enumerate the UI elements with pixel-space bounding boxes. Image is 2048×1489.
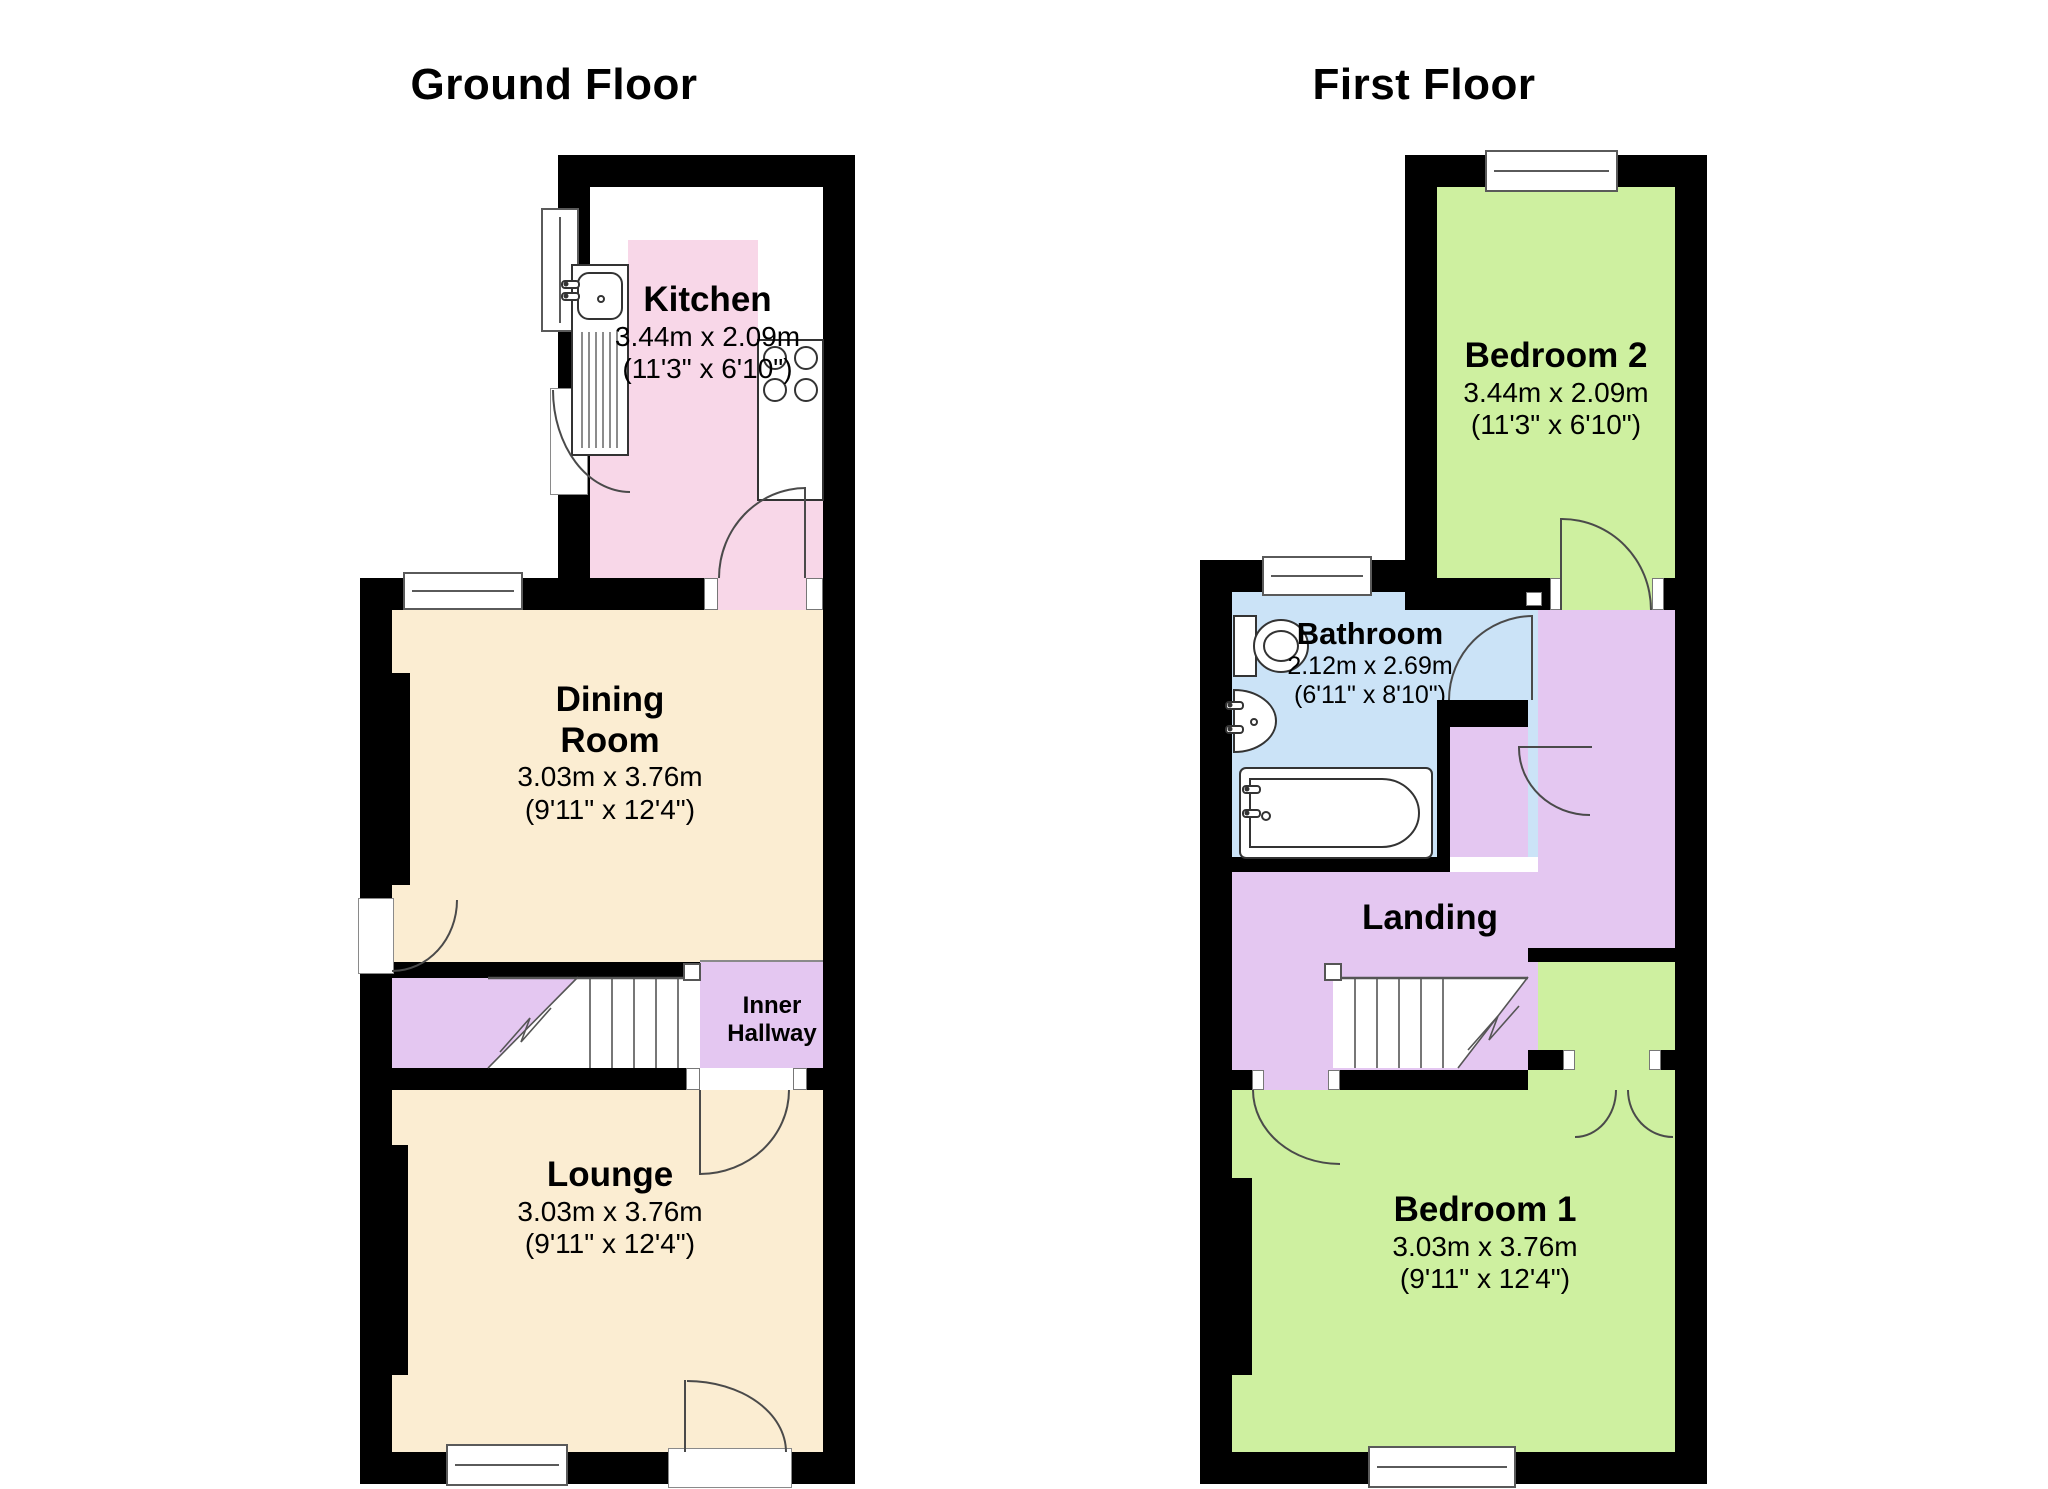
room-name: Landing: [1330, 898, 1530, 939]
door-leaf: [1531, 615, 1533, 700]
room-dims-imperial: (9'11" x 12'4"): [1330, 1263, 1640, 1295]
overstairs-cupboard-floor: [1538, 962, 1675, 1050]
bedroom1-window: [1368, 1446, 1516, 1488]
wall: [392, 1068, 686, 1090]
fixtures-layer: [0, 0, 2048, 1489]
wall: [392, 962, 700, 978]
door-leaf: [1560, 518, 1562, 610]
wall: [823, 155, 855, 1484]
wall: [1528, 1050, 1563, 1070]
wall: [1232, 857, 1450, 872]
door-jamb: [1252, 1070, 1264, 1090]
room-dims-imperial: (6'11" x 8'10"): [1245, 681, 1495, 710]
bathroom-label: Bathroom 2.12m x 2.69m (6'11" x 8'10"): [1245, 616, 1495, 710]
room-name: Dining: [455, 680, 765, 721]
chimney-breast: [392, 673, 410, 885]
wall: [1661, 1050, 1675, 1070]
door-jamb: [793, 1068, 807, 1090]
door-jamb: [1526, 592, 1542, 606]
wall: [558, 155, 855, 187]
bedroom1-floor: [1528, 1070, 1675, 1090]
lounge-label: Lounge 3.03m x 3.76m (9'11" x 12'4"): [455, 1155, 765, 1261]
wall: [1340, 1070, 1528, 1090]
first-floor-title: First Floor: [1224, 60, 1624, 110]
cupboard-floor: [1450, 727, 1528, 857]
ground-floor-title: Ground Floor: [354, 60, 754, 110]
dining-room-window: [403, 572, 523, 610]
room-dims-metric: 3.03m x 3.76m: [455, 1196, 765, 1228]
room-dims-metric: 2.12m x 2.69m: [1245, 652, 1495, 681]
wall: [1664, 578, 1675, 610]
wall: [1528, 948, 1675, 962]
wall: [807, 1068, 823, 1090]
door-jamb: [1328, 1070, 1340, 1090]
wall: [1200, 560, 1232, 1484]
room-name: Kitchen: [595, 280, 820, 321]
room-name: Hallway: [712, 1020, 832, 1048]
room-dims-metric: 3.03m x 3.76m: [1330, 1231, 1640, 1263]
room-name: Inner: [712, 992, 832, 1020]
inner-hallway-label: Inner Hallway: [712, 992, 832, 1048]
landing-label: Landing: [1330, 898, 1530, 939]
chimney-breast: [392, 1145, 408, 1375]
room-name: Lounge: [455, 1155, 765, 1196]
bedroom2-label: Bedroom 2 3.44m x 2.09m (11'3" x 6'10"): [1401, 336, 1711, 442]
bathroom-window: [1262, 556, 1372, 596]
room-dims-metric: 3.44m x 2.09m: [1401, 377, 1711, 409]
dining-room-label: Dining Room 3.03m x 3.76m (9'11" x 12'4"…: [455, 680, 765, 826]
door-jamb: [1563, 1050, 1575, 1070]
bedroom1-label: Bedroom 1 3.03m x 3.76m (9'11" x 12'4"): [1330, 1190, 1640, 1296]
door-leaf: [804, 487, 806, 578]
room-name: Bedroom 1: [1330, 1190, 1640, 1231]
door-jamb: [704, 578, 718, 610]
kitchen-doorway-floor: [718, 578, 806, 610]
bedroom2-window: [1485, 150, 1618, 192]
door-jamb: [806, 578, 823, 610]
wall: [590, 578, 704, 610]
room-dims-imperial: (11'3" x 6'10"): [595, 353, 820, 385]
chimney-breast: [1232, 1178, 1252, 1375]
staircase: [1333, 977, 1528, 1068]
inner-hallway-floor: [392, 977, 488, 1068]
room-dims-imperial: (9'11" x 12'4"): [455, 1228, 765, 1260]
room-name: Room: [455, 721, 765, 762]
wall: [1232, 1070, 1252, 1090]
bedroom1-doorway-floor: [1264, 1070, 1328, 1090]
wall: [360, 578, 392, 1484]
room-dims-metric: 3.03m x 3.76m: [455, 761, 765, 793]
overstairs-doorway-floor: [1575, 1050, 1649, 1070]
room-dims-metric: 3.44m x 2.09m: [595, 321, 820, 353]
staircase: [488, 977, 700, 1068]
room-dims-imperial: (9'11" x 12'4"): [455, 794, 765, 826]
kitchen-window: [541, 208, 579, 332]
kitchen-label: Kitchen 3.44m x 2.09m (11'3" x 6'10"): [595, 280, 820, 386]
room-dims-imperial: (11'3" x 6'10"): [1401, 409, 1711, 441]
floorplan-page: Ground Floor First Floor: [0, 0, 2048, 1489]
room-name: Bathroom: [1245, 616, 1495, 652]
dining-side-door-opening: [358, 898, 394, 974]
door-jamb: [1652, 578, 1664, 610]
door-jamb: [1649, 1050, 1661, 1070]
front-door-opening: [668, 1448, 792, 1488]
door-jamb: [686, 1068, 700, 1090]
door-leaf: [1518, 746, 1592, 748]
lounge-window: [446, 1444, 568, 1486]
door-leaf: [684, 1380, 686, 1452]
room-name: Bedroom 2: [1401, 336, 1711, 377]
cupboard-wall: [1437, 727, 1450, 872]
